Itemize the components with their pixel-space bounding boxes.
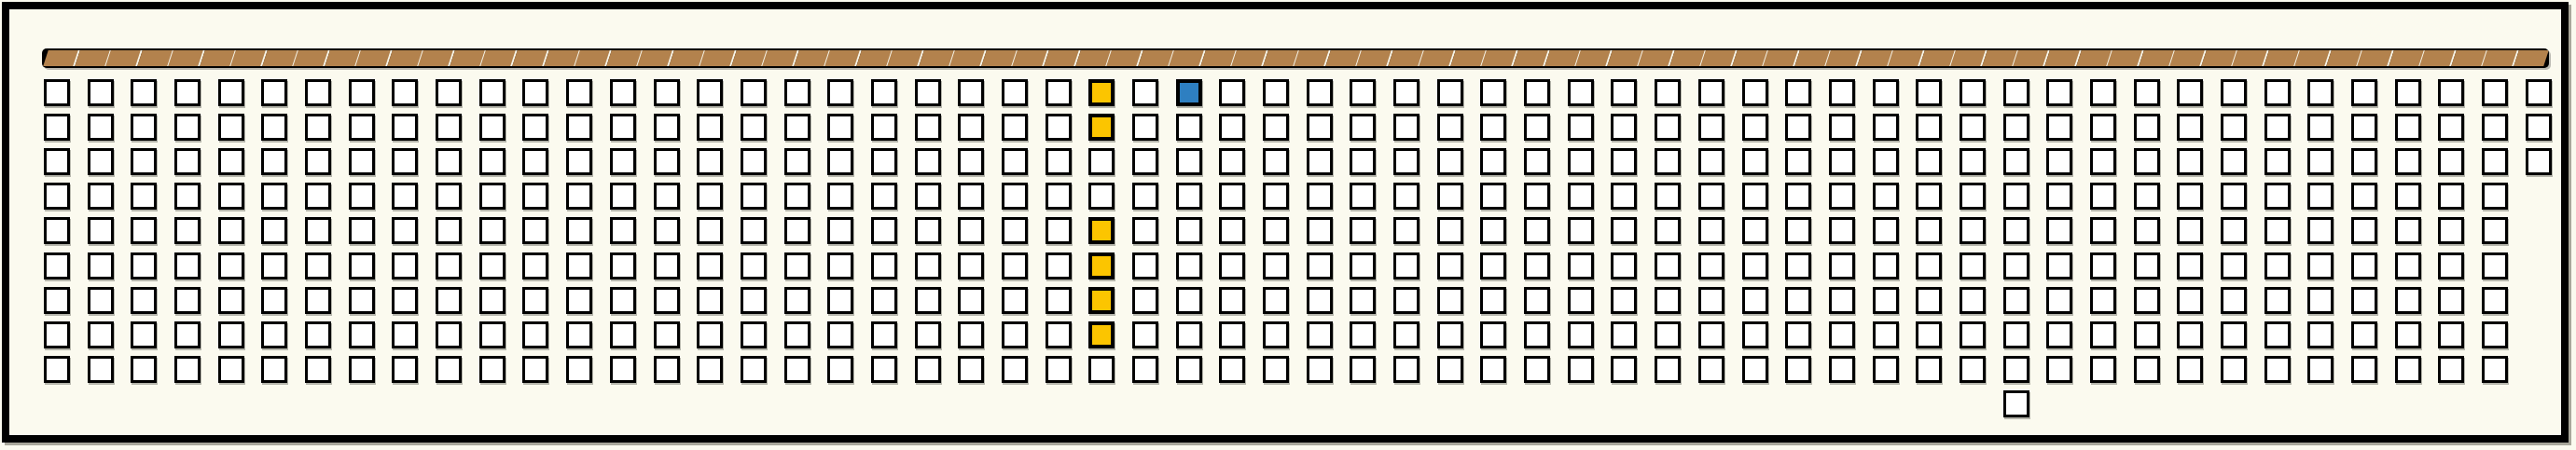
seat-r9-c8[interactable] <box>349 356 375 383</box>
seat-r3-c44[interactable] <box>1916 148 1942 175</box>
seat-r5-c46[interactable] <box>2003 217 2029 244</box>
seat-r4-c54[interactable] <box>2351 183 2377 210</box>
seat-r6-c23[interactable] <box>1002 252 1028 280</box>
seat-r5-c13[interactable] <box>566 217 592 244</box>
seat-r7-c21[interactable] <box>915 287 941 314</box>
seat-r8-c7[interactable] <box>305 321 331 348</box>
seat-r3-c2[interactable] <box>88 148 114 175</box>
seat-r2-c20[interactable] <box>871 114 897 141</box>
seat-r1-c40[interactable] <box>1742 79 1768 106</box>
seat-r9-c40[interactable] <box>1742 356 1768 383</box>
seat-r2-c28[interactable] <box>1219 114 1245 141</box>
seat-r6-c3[interactable] <box>131 252 157 280</box>
seat-r8-c33[interactable] <box>1437 321 1463 348</box>
seat-r2-c43[interactable] <box>1873 114 1899 141</box>
seat-r9-c47[interactable] <box>2046 356 2072 383</box>
seat-r7-c24[interactable] <box>1046 287 1072 314</box>
seat-r5-c33[interactable] <box>1437 217 1463 244</box>
seat-r8-c57[interactable] <box>2482 321 2508 348</box>
seat-r4-c36[interactable] <box>1568 183 1594 210</box>
seat-r7-c8[interactable] <box>349 287 375 314</box>
seat-r4-c5[interactable] <box>218 183 244 210</box>
seat-r3-c54[interactable] <box>2351 148 2377 175</box>
seat-r2-c48[interactable] <box>2090 114 2116 141</box>
seat-r4-c23[interactable] <box>1002 183 1028 210</box>
seat-r9-c57[interactable] <box>2482 356 2508 383</box>
seat-r3-c26[interactable] <box>1132 148 1158 175</box>
seat-r9-c26[interactable] <box>1132 356 1158 383</box>
seat-r9-c43[interactable] <box>1873 356 1899 383</box>
seat-r4-c1[interactable] <box>44 183 70 210</box>
seat-r8-c35[interactable] <box>1524 321 1550 348</box>
seat-r7-c25[interactable] <box>1088 287 1115 314</box>
seat-r1-c23[interactable] <box>1002 79 1028 106</box>
seat-r5-c49[interactable] <box>2134 217 2160 244</box>
seat-r4-c35[interactable] <box>1524 183 1550 210</box>
seat-r6-c42[interactable] <box>1829 252 1855 280</box>
seat-r8-c25[interactable] <box>1088 321 1115 348</box>
seat-r8-c36[interactable] <box>1568 321 1594 348</box>
seat-r8-c15[interactable] <box>654 321 680 348</box>
seat-r2-c56[interactable] <box>2438 114 2464 141</box>
seat-r7-c23[interactable] <box>1002 287 1028 314</box>
seat-r7-c19[interactable] <box>827 287 853 314</box>
seat-r8-c5[interactable] <box>218 321 244 348</box>
seat-r8-c26[interactable] <box>1132 321 1158 348</box>
seat-r5-c16[interactable] <box>697 217 723 244</box>
seat-r9-c29[interactable] <box>1263 356 1289 383</box>
seat-r7-c45[interactable] <box>1960 287 1986 314</box>
seat-r6-c34[interactable] <box>1480 252 1506 280</box>
seat-r5-c31[interactable] <box>1350 217 1376 244</box>
seat-r2-c9[interactable] <box>392 114 418 141</box>
seat-r6-c29[interactable] <box>1263 252 1289 280</box>
seat-r3-c52[interactable] <box>2264 148 2291 175</box>
seat-r8-c47[interactable] <box>2046 321 2072 348</box>
seat-r5-c12[interactable] <box>522 217 548 244</box>
seat-r9-c49[interactable] <box>2134 356 2160 383</box>
seat-r5-c50[interactable] <box>2177 217 2203 244</box>
seat-r3-c10[interactable] <box>436 148 462 175</box>
seat-r7-c14[interactable] <box>610 287 636 314</box>
seat-r8-c46[interactable] <box>2003 321 2029 348</box>
seat-r3-c13[interactable] <box>566 148 592 175</box>
seat-r7-c9[interactable] <box>392 287 418 314</box>
seat-r4-c44[interactable] <box>1916 183 1942 210</box>
seat-r4-c26[interactable] <box>1132 183 1158 210</box>
seat-r9-c22[interactable] <box>958 356 984 383</box>
seat-r3-c34[interactable] <box>1480 148 1506 175</box>
seat-r6-c49[interactable] <box>2134 252 2160 280</box>
seat-r5-c40[interactable] <box>1742 217 1768 244</box>
seat-r6-c26[interactable] <box>1132 252 1158 280</box>
seat-r3-c18[interactable] <box>784 148 810 175</box>
seat-r9-c28[interactable] <box>1219 356 1245 383</box>
seat-r2-c54[interactable] <box>2351 114 2377 141</box>
seat-r9-c17[interactable] <box>741 356 767 383</box>
seat-r7-c11[interactable] <box>479 287 506 314</box>
seat-r4-c12[interactable] <box>522 183 548 210</box>
seat-r4-c16[interactable] <box>697 183 723 210</box>
seat-r1-c39[interactable] <box>1698 79 1724 106</box>
seat-r7-c26[interactable] <box>1132 287 1158 314</box>
seat-r9-c32[interactable] <box>1393 356 1420 383</box>
seat-r9-c14[interactable] <box>610 356 636 383</box>
seat-r9-c48[interactable] <box>2090 356 2116 383</box>
seat-r6-c55[interactable] <box>2395 252 2421 280</box>
seat-r4-c55[interactable] <box>2395 183 2421 210</box>
seat-r3-c41[interactable] <box>1785 148 1811 175</box>
seat-r4-c48[interactable] <box>2090 183 2116 210</box>
seat-r3-c33[interactable] <box>1437 148 1463 175</box>
seat-r9-c46[interactable] <box>2003 356 2029 383</box>
seat-r4-c47[interactable] <box>2046 183 2072 210</box>
seat-r2-c8[interactable] <box>349 114 375 141</box>
seat-r7-c18[interactable] <box>784 287 810 314</box>
seat-r1-c13[interactable] <box>566 79 592 106</box>
seat-r4-c38[interactable] <box>1655 183 1681 210</box>
seat-r8-c32[interactable] <box>1393 321 1420 348</box>
seat-r6-c27[interactable] <box>1176 252 1202 280</box>
seat-r2-c11[interactable] <box>479 114 506 141</box>
seat-r3-c40[interactable] <box>1742 148 1768 175</box>
seat-r7-c10[interactable] <box>436 287 462 314</box>
seat-r2-c38[interactable] <box>1655 114 1681 141</box>
seat-r5-c36[interactable] <box>1568 217 1594 244</box>
seat-r6-c31[interactable] <box>1350 252 1376 280</box>
seat-r5-c28[interactable] <box>1219 217 1245 244</box>
seat-r5-c19[interactable] <box>827 217 853 244</box>
seat-r9-c33[interactable] <box>1437 356 1463 383</box>
seat-r8-c10[interactable] <box>436 321 462 348</box>
seat-r4-c50[interactable] <box>2177 183 2203 210</box>
seat-r6-c15[interactable] <box>654 252 680 280</box>
seat-r8-c45[interactable] <box>1960 321 1986 348</box>
seat-r4-c39[interactable] <box>1698 183 1724 210</box>
seat-r7-c20[interactable] <box>871 287 897 314</box>
seat-r3-c24[interactable] <box>1046 148 1072 175</box>
seat-r5-c10[interactable] <box>436 217 462 244</box>
seat-r8-c53[interactable] <box>2307 321 2334 348</box>
seat-r6-c6[interactable] <box>261 252 287 280</box>
seat-r1-c49[interactable] <box>2134 79 2160 106</box>
seat-r8-c42[interactable] <box>1829 321 1855 348</box>
seat-r1-c34[interactable] <box>1480 79 1506 106</box>
seat-r4-c11[interactable] <box>479 183 506 210</box>
seat-r1-c5[interactable] <box>218 79 244 106</box>
seat-r3-c30[interactable] <box>1307 148 1333 175</box>
seat-r5-c27[interactable] <box>1176 217 1202 244</box>
seat-r8-c34[interactable] <box>1480 321 1506 348</box>
seat-r4-c2[interactable] <box>88 183 114 210</box>
seat-r7-c17[interactable] <box>741 287 767 314</box>
seat-r6-c40[interactable] <box>1742 252 1768 280</box>
seat-r1-c27[interactable] <box>1176 79 1202 106</box>
seat-r1-c41[interactable] <box>1785 79 1811 106</box>
seat-r6-c41[interactable] <box>1785 252 1811 280</box>
seat-r9-c30[interactable] <box>1307 356 1333 383</box>
seat-r6-c44[interactable] <box>1916 252 1942 280</box>
seat-r5-c23[interactable] <box>1002 217 1028 244</box>
seat-r7-c12[interactable] <box>522 287 548 314</box>
seat-r3-c57[interactable] <box>2482 148 2508 175</box>
seat-r2-c29[interactable] <box>1263 114 1289 141</box>
seat-r5-c55[interactable] <box>2395 217 2421 244</box>
seat-r2-c41[interactable] <box>1785 114 1811 141</box>
seat-r1-c46[interactable] <box>2003 79 2029 106</box>
seat-r3-c45[interactable] <box>1960 148 1986 175</box>
seat-r9-c23[interactable] <box>1002 356 1028 383</box>
seat-r6-c9[interactable] <box>392 252 418 280</box>
seat-r4-c52[interactable] <box>2264 183 2291 210</box>
seat-r1-c33[interactable] <box>1437 79 1463 106</box>
seat-r4-c32[interactable] <box>1393 183 1420 210</box>
seat-r1-c15[interactable] <box>654 79 680 106</box>
seat-r8-c49[interactable] <box>2134 321 2160 348</box>
seat-r10-c46[interactable] <box>2003 390 2029 417</box>
seat-r2-c47[interactable] <box>2046 114 2072 141</box>
seat-r9-c27[interactable] <box>1176 356 1202 383</box>
seat-r5-c11[interactable] <box>479 217 506 244</box>
seat-r2-c36[interactable] <box>1568 114 1594 141</box>
seat-r8-c17[interactable] <box>741 321 767 348</box>
seat-r7-c4[interactable] <box>174 287 201 314</box>
seat-r9-c15[interactable] <box>654 356 680 383</box>
seat-r8-c4[interactable] <box>174 321 201 348</box>
seat-r7-c48[interactable] <box>2090 287 2116 314</box>
seat-r2-c2[interactable] <box>88 114 114 141</box>
seat-r8-c56[interactable] <box>2438 321 2464 348</box>
seat-r9-c24[interactable] <box>1046 356 1072 383</box>
seat-r9-c42[interactable] <box>1829 356 1855 383</box>
seat-r4-c20[interactable] <box>871 183 897 210</box>
seat-r8-c41[interactable] <box>1785 321 1811 348</box>
seat-r6-c46[interactable] <box>2003 252 2029 280</box>
seat-r3-c27[interactable] <box>1176 148 1202 175</box>
seat-r3-c5[interactable] <box>218 148 244 175</box>
seat-r3-c47[interactable] <box>2046 148 2072 175</box>
seat-r8-c16[interactable] <box>697 321 723 348</box>
seat-r6-c50[interactable] <box>2177 252 2203 280</box>
seat-r5-c45[interactable] <box>1960 217 1986 244</box>
seat-r6-c10[interactable] <box>436 252 462 280</box>
seat-r8-c50[interactable] <box>2177 321 2203 348</box>
seat-r2-c42[interactable] <box>1829 114 1855 141</box>
seat-r4-c27[interactable] <box>1176 183 1202 210</box>
seat-r2-c40[interactable] <box>1742 114 1768 141</box>
seat-r1-c18[interactable] <box>784 79 810 106</box>
seat-r1-c2[interactable] <box>88 79 114 106</box>
seat-r7-c54[interactable] <box>2351 287 2377 314</box>
seat-r8-c3[interactable] <box>131 321 157 348</box>
seat-r9-c5[interactable] <box>218 356 244 383</box>
seat-r2-c14[interactable] <box>610 114 636 141</box>
seat-r3-c35[interactable] <box>1524 148 1550 175</box>
seat-r2-c46[interactable] <box>2003 114 2029 141</box>
seat-r1-c7[interactable] <box>305 79 331 106</box>
seat-r7-c28[interactable] <box>1219 287 1245 314</box>
seat-r8-c44[interactable] <box>1916 321 1942 348</box>
seat-r7-c5[interactable] <box>218 287 244 314</box>
seat-r3-c8[interactable] <box>349 148 375 175</box>
seat-r5-c24[interactable] <box>1046 217 1072 244</box>
seat-r6-c47[interactable] <box>2046 252 2072 280</box>
seat-r7-c36[interactable] <box>1568 287 1594 314</box>
seat-r5-c30[interactable] <box>1307 217 1333 244</box>
seat-r1-c35[interactable] <box>1524 79 1550 106</box>
seat-r7-c7[interactable] <box>305 287 331 314</box>
seat-r4-c41[interactable] <box>1785 183 1811 210</box>
seat-r9-c25[interactable] <box>1088 356 1115 383</box>
seat-r5-c5[interactable] <box>218 217 244 244</box>
seat-r6-c16[interactable] <box>697 252 723 280</box>
seat-r1-c19[interactable] <box>827 79 853 106</box>
seat-r1-c4[interactable] <box>174 79 201 106</box>
seat-r1-c22[interactable] <box>958 79 984 106</box>
seat-r1-c52[interactable] <box>2264 79 2291 106</box>
seat-r5-c2[interactable] <box>88 217 114 244</box>
seat-r4-c46[interactable] <box>2003 183 2029 210</box>
seat-r6-c22[interactable] <box>958 252 984 280</box>
seat-r7-c15[interactable] <box>654 287 680 314</box>
seat-r2-c22[interactable] <box>958 114 984 141</box>
seat-r7-c33[interactable] <box>1437 287 1463 314</box>
seat-r2-c24[interactable] <box>1046 114 1072 141</box>
seat-r5-c26[interactable] <box>1132 217 1158 244</box>
seat-r3-c17[interactable] <box>741 148 767 175</box>
seat-r5-c41[interactable] <box>1785 217 1811 244</box>
seat-r6-c36[interactable] <box>1568 252 1594 280</box>
seat-r1-c42[interactable] <box>1829 79 1855 106</box>
seat-r8-c23[interactable] <box>1002 321 1028 348</box>
seat-r6-c53[interactable] <box>2307 252 2334 280</box>
seat-r3-c51[interactable] <box>2221 148 2247 175</box>
seat-r3-c36[interactable] <box>1568 148 1594 175</box>
seat-r2-c25[interactable] <box>1088 114 1115 141</box>
seat-r6-c37[interactable] <box>1611 252 1637 280</box>
seat-r7-c27[interactable] <box>1176 287 1202 314</box>
seat-r8-c22[interactable] <box>958 321 984 348</box>
seat-r5-c35[interactable] <box>1524 217 1550 244</box>
seat-r3-c20[interactable] <box>871 148 897 175</box>
seat-r1-c53[interactable] <box>2307 79 2334 106</box>
seat-r4-c21[interactable] <box>915 183 941 210</box>
seat-r9-c41[interactable] <box>1785 356 1811 383</box>
seat-r7-c32[interactable] <box>1393 287 1420 314</box>
seat-r7-c43[interactable] <box>1873 287 1899 314</box>
seat-r9-c20[interactable] <box>871 356 897 383</box>
seat-r8-c6[interactable] <box>261 321 287 348</box>
seat-r5-c42[interactable] <box>1829 217 1855 244</box>
seat-r5-c25[interactable] <box>1088 217 1115 244</box>
seat-r4-c22[interactable] <box>958 183 984 210</box>
seat-r9-c16[interactable] <box>697 356 723 383</box>
seat-r8-c43[interactable] <box>1873 321 1899 348</box>
seat-r1-c51[interactable] <box>2221 79 2247 106</box>
seat-r6-c4[interactable] <box>174 252 201 280</box>
seat-r9-c37[interactable] <box>1611 356 1637 383</box>
seat-r7-c51[interactable] <box>2221 287 2247 314</box>
seat-r9-c54[interactable] <box>2351 356 2377 383</box>
seat-r2-c1[interactable] <box>44 114 70 141</box>
seat-r2-c13[interactable] <box>566 114 592 141</box>
seat-r4-c28[interactable] <box>1219 183 1245 210</box>
seat-r8-c28[interactable] <box>1219 321 1245 348</box>
seat-r6-c45[interactable] <box>1960 252 1986 280</box>
seat-r1-c36[interactable] <box>1568 79 1594 106</box>
seat-r7-c57[interactable] <box>2482 287 2508 314</box>
seat-r7-c16[interactable] <box>697 287 723 314</box>
seat-r6-c13[interactable] <box>566 252 592 280</box>
seat-r4-c10[interactable] <box>436 183 462 210</box>
seat-r1-c50[interactable] <box>2177 79 2203 106</box>
seat-r3-c16[interactable] <box>697 148 723 175</box>
seat-r1-c11[interactable] <box>479 79 506 106</box>
seat-r5-c8[interactable] <box>349 217 375 244</box>
seat-r1-c56[interactable] <box>2438 79 2464 106</box>
seat-r4-c4[interactable] <box>174 183 201 210</box>
seat-r8-c27[interactable] <box>1176 321 1202 348</box>
seat-r5-c51[interactable] <box>2221 217 2247 244</box>
seat-r2-c35[interactable] <box>1524 114 1550 141</box>
seat-r8-c52[interactable] <box>2264 321 2291 348</box>
seat-r1-c38[interactable] <box>1655 79 1681 106</box>
seat-r8-c29[interactable] <box>1263 321 1289 348</box>
seat-r3-c14[interactable] <box>610 148 636 175</box>
seat-r4-c25[interactable] <box>1088 183 1115 210</box>
seat-r9-c7[interactable] <box>305 356 331 383</box>
seat-r1-c44[interactable] <box>1916 79 1942 106</box>
seat-r1-c9[interactable] <box>392 79 418 106</box>
seat-r9-c51[interactable] <box>2221 356 2247 383</box>
seat-r6-c32[interactable] <box>1393 252 1420 280</box>
seat-r8-c20[interactable] <box>871 321 897 348</box>
seat-r8-c54[interactable] <box>2351 321 2377 348</box>
seat-r8-c48[interactable] <box>2090 321 2116 348</box>
seat-r5-c15[interactable] <box>654 217 680 244</box>
seat-r2-c7[interactable] <box>305 114 331 141</box>
seat-r3-c39[interactable] <box>1698 148 1724 175</box>
seat-r2-c34[interactable] <box>1480 114 1506 141</box>
seat-r8-c55[interactable] <box>2395 321 2421 348</box>
seat-r7-c50[interactable] <box>2177 287 2203 314</box>
seat-r5-c7[interactable] <box>305 217 331 244</box>
seat-r7-c6[interactable] <box>261 287 287 314</box>
seat-r6-c12[interactable] <box>522 252 548 280</box>
seat-r1-c32[interactable] <box>1393 79 1420 106</box>
seat-r6-c7[interactable] <box>305 252 331 280</box>
seat-r6-c20[interactable] <box>871 252 897 280</box>
seat-r3-c58[interactable] <box>2526 148 2552 175</box>
seat-r4-c7[interactable] <box>305 183 331 210</box>
seat-r9-c36[interactable] <box>1568 356 1594 383</box>
seat-r6-c2[interactable] <box>88 252 114 280</box>
seat-r3-c56[interactable] <box>2438 148 2464 175</box>
seat-r8-c30[interactable] <box>1307 321 1333 348</box>
seat-r7-c55[interactable] <box>2395 287 2421 314</box>
seat-r4-c9[interactable] <box>392 183 418 210</box>
seat-r5-c47[interactable] <box>2046 217 2072 244</box>
seat-r9-c4[interactable] <box>174 356 201 383</box>
seat-r4-c15[interactable] <box>654 183 680 210</box>
seat-r3-c53[interactable] <box>2307 148 2334 175</box>
seat-r8-c39[interactable] <box>1698 321 1724 348</box>
seat-r2-c19[interactable] <box>827 114 853 141</box>
seat-r2-c15[interactable] <box>654 114 680 141</box>
seat-r4-c14[interactable] <box>610 183 636 210</box>
seat-r2-c23[interactable] <box>1002 114 1028 141</box>
seat-r2-c57[interactable] <box>2482 114 2508 141</box>
